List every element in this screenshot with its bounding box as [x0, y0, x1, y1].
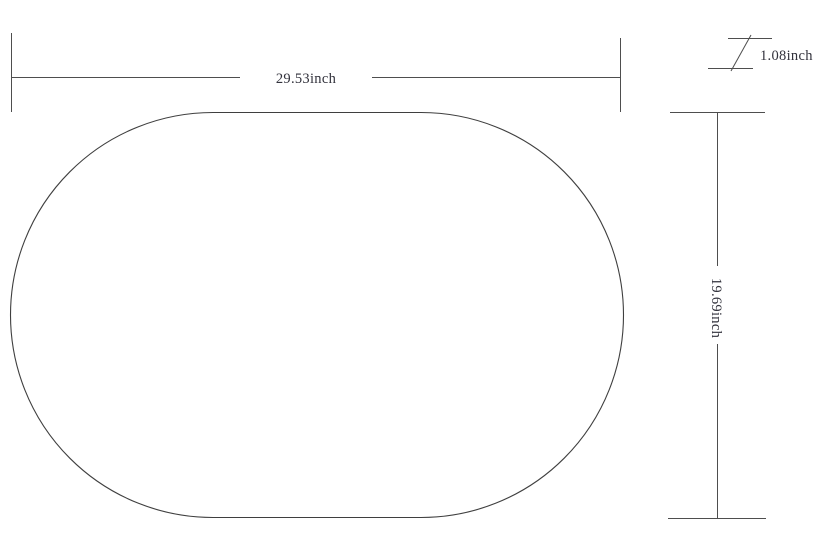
oval-tabletop-outline [11, 113, 624, 518]
width-dimension-label: 29.53inch [276, 71, 337, 87]
dimension-drawing: 29.53inch 19.69inch 1.08inch [0, 0, 840, 534]
thickness-dimension-label: 1.08inch [760, 48, 813, 64]
width-dimension: 29.53inch [12, 33, 621, 112]
thickness-diagonal-leader-line [731, 35, 751, 71]
dimension-drawing-canvas: 29.53inch 19.69inch 1.08inch [0, 0, 840, 534]
thickness-dimension: 1.08inch [708, 35, 813, 71]
height-dimension: 19.69inch [668, 113, 766, 519]
height-dimension-label: 19.69inch [708, 278, 724, 339]
